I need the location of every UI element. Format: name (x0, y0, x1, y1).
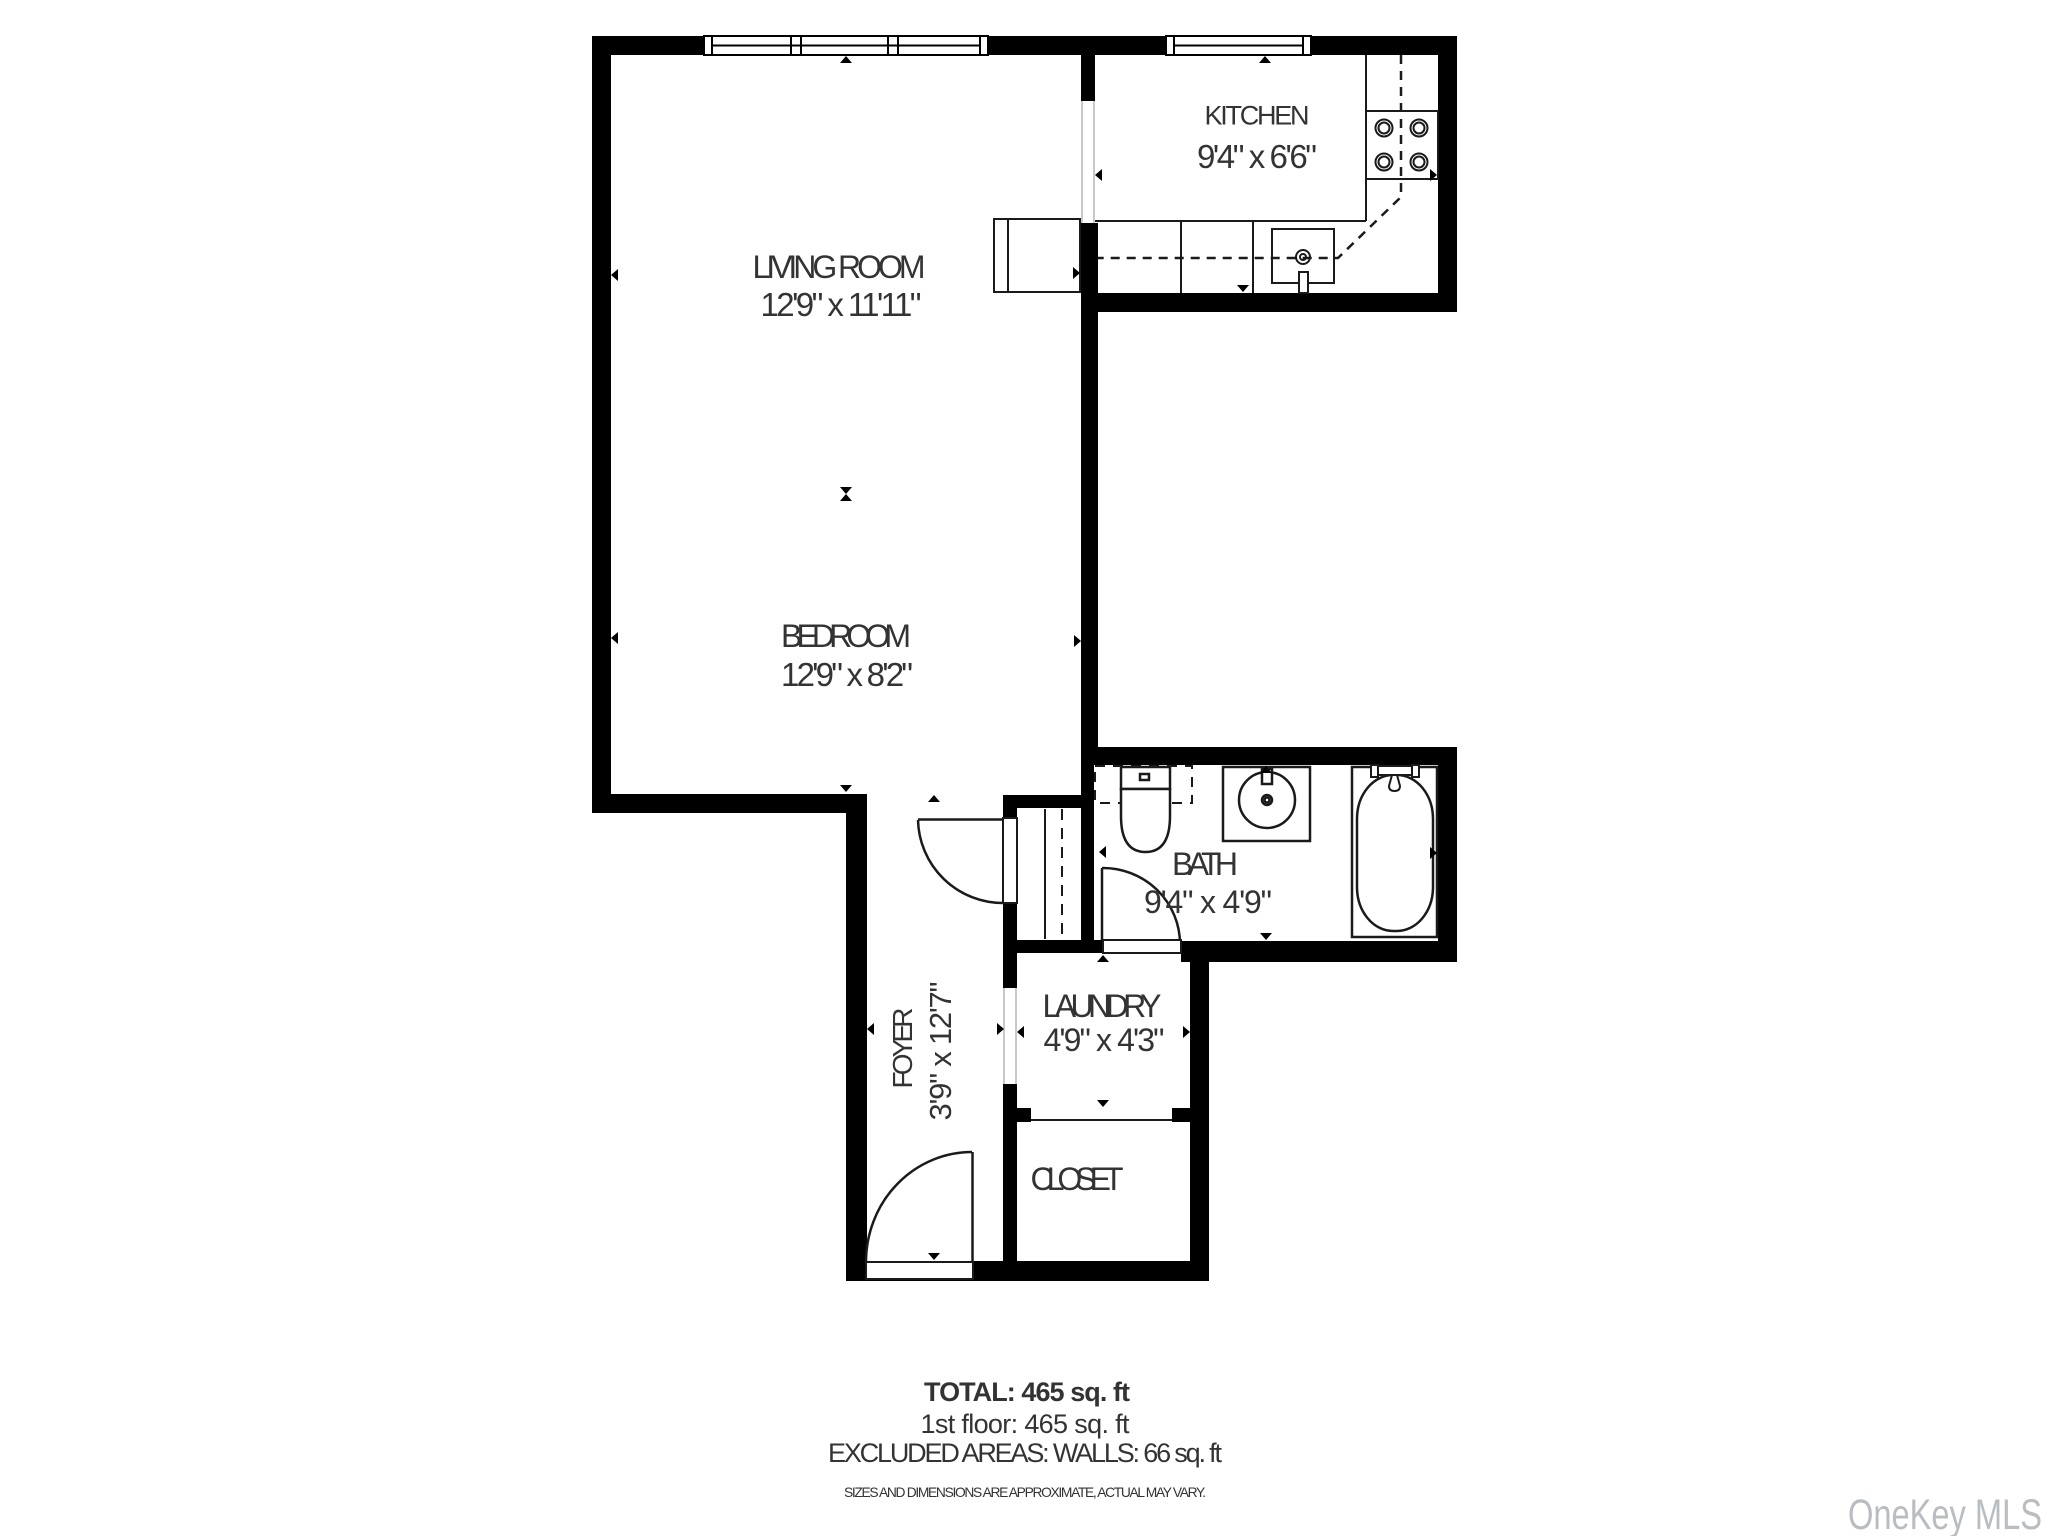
svg-text:9'4" x 6'6": 9'4" x 6'6" (1197, 138, 1317, 175)
svg-text:FOYER: FOYER (887, 1008, 918, 1089)
svg-text:SIZES AND DIMENSIONS ARE APPRO: SIZES AND DIMENSIONS ARE APPROXIMATE, AC… (844, 1485, 1206, 1500)
svg-text:BEDROOM: BEDROOM (781, 618, 911, 654)
svg-text:KITCHEN: KITCHEN (1205, 101, 1310, 131)
svg-text:LIVING ROOM: LIVING ROOM (753, 249, 926, 285)
svg-text:LAUNDRY: LAUNDRY (1043, 988, 1162, 1024)
svg-text:1st floor: 465 sq. ft: 1st floor: 465 sq. ft (921, 1409, 1130, 1439)
svg-text:12'9" x 11'11": 12'9" x 11'11" (761, 286, 922, 323)
svg-text:OneKey MLS: OneKey MLS (1848, 1491, 2042, 1536)
svg-text:12'9" x 8'2": 12'9" x 8'2" (781, 656, 913, 693)
svg-text:BATH: BATH (1172, 846, 1238, 882)
svg-text:3'9" x 12'7": 3'9" x 12'7" (923, 982, 958, 1121)
svg-text:CLOSET: CLOSET (1031, 1161, 1124, 1197)
svg-text:TOTAL: 465 sq. ft: TOTAL: 465 sq. ft (924, 1377, 1130, 1407)
svg-text:9'4" x 4'9": 9'4" x 4'9" (1144, 884, 1272, 920)
svg-text:EXCLUDED AREAS: WALLS: 66 sq.: EXCLUDED AREAS: WALLS: 66 sq. ft (828, 1438, 1222, 1468)
svg-text:4'9" x 4'3": 4'9" x 4'3" (1044, 1022, 1165, 1058)
